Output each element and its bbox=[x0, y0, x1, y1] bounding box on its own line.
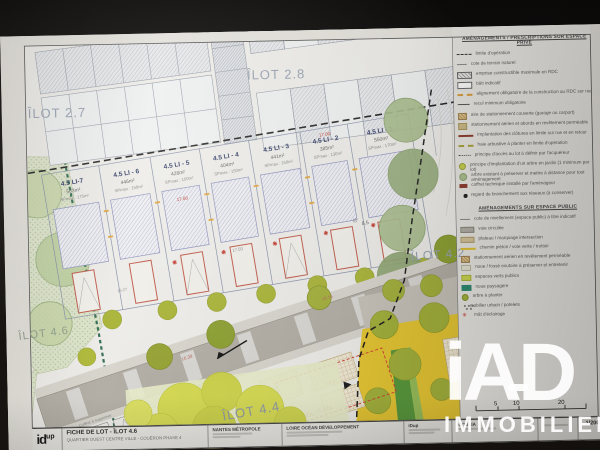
dimension-label: 8.5 bbox=[361, 220, 369, 227]
title-block-title-cell: FICHE DE LOT - ÎLOT 4.6 QUARTIER OUEST C… bbox=[62, 425, 208, 450]
legend-item-icon bbox=[458, 123, 467, 130]
legend-item-label: cote de terrain naturel bbox=[471, 60, 516, 66]
legend-item-icon bbox=[460, 236, 474, 242]
iad-logo: iAD bbox=[444, 338, 600, 408]
legend-item: regard de branchement aux réseaux (à con… bbox=[459, 190, 595, 203]
title-block-logo-cell: idup bbox=[32, 428, 62, 450]
legend-private-title: AMÉNAGEMENTS / PRESCRIPTIONS SUR ESPACE … bbox=[456, 34, 592, 47]
idup-logo: idup bbox=[36, 432, 54, 447]
legend-item-label: regard de branchement aux réseaux (à con… bbox=[471, 190, 573, 197]
legend-item-icon bbox=[464, 194, 468, 198]
legend-item-icon bbox=[457, 94, 472, 96]
watermark-tagline: IMMOBILIER bbox=[444, 412, 600, 438]
legend-item-icon bbox=[457, 64, 467, 65]
legend-item-icon bbox=[459, 155, 471, 156]
legend-item-label: cote de nivellement (espace public) à ti… bbox=[474, 214, 576, 221]
legend-public-title: AMÉNAGEMENTS SUR ESPACE PUBLIC bbox=[460, 205, 596, 213]
legend-item-icon bbox=[460, 219, 470, 220]
legend-item-icon bbox=[457, 82, 472, 89]
legend-item-icon bbox=[459, 163, 466, 170]
legend-item-label: stationnement aérien et abords en revête… bbox=[471, 119, 588, 127]
legend-item-icon bbox=[457, 72, 472, 79]
legend-item-label: noue paysagère bbox=[475, 283, 508, 289]
legend-item-label: bâti indicatif bbox=[476, 80, 500, 86]
legend-item-label: plateau / marquage intersection bbox=[478, 234, 542, 241]
legend-item-icon bbox=[461, 265, 471, 271]
legend-item-label: arbre à planter bbox=[473, 292, 503, 298]
legend-panel: AMÉNAGEMENTS / PRESCRIPTIONS SUR ESPACE … bbox=[456, 34, 598, 322]
legend-item-label: stationnement aérien en revêtement permé… bbox=[474, 253, 571, 260]
legend-item-icon bbox=[464, 305, 466, 307]
legend-item-label: coffret technique installé par l'aménage… bbox=[471, 180, 555, 187]
legend-item-icon bbox=[462, 294, 469, 301]
author-name: iDup bbox=[408, 422, 448, 428]
legend-item-label: limite d'opération bbox=[476, 50, 511, 56]
legend-item-label: aire de stationnement couverte (garage o… bbox=[471, 109, 575, 116]
legend-item-icon bbox=[462, 313, 470, 320]
legend-item-label: haie arbustive à planter en limite d'opé… bbox=[477, 140, 567, 147]
legend-item-label: voie circulée bbox=[478, 225, 504, 231]
legend-item-icon bbox=[458, 135, 473, 137]
legend-item-label: espaces verts publics bbox=[475, 273, 519, 279]
client-name: NANTES MÉTROPOLE bbox=[212, 426, 278, 432]
legend-item-icon bbox=[461, 284, 471, 290]
ilot-2-7-label: ÎLOT 2.7 bbox=[28, 105, 87, 121]
legend-item-icon bbox=[460, 227, 474, 233]
watermark-dash bbox=[508, 384, 528, 391]
legend-item-label: chemin piéton / voie verte / trottoir bbox=[480, 243, 549, 250]
legend-item-label: recul minimum obligatoire bbox=[474, 100, 526, 106]
legend-item-label: implantation des clôtures en limite sur … bbox=[477, 129, 587, 137]
legend-item-icon bbox=[461, 256, 470, 263]
title-block-client-cell: NANTES MÉTROPOLE bbox=[208, 424, 282, 448]
legend-item-label: mobilier urbain / potelets bbox=[470, 302, 520, 308]
legend-item-icon bbox=[459, 184, 467, 188]
legend-item-icon bbox=[458, 112, 467, 119]
legend-item-label: mât d'éclairage bbox=[474, 311, 505, 317]
legend-item-icon bbox=[461, 247, 476, 249]
title-block-developer-cell: LOIRE OCÉAN DÉVELOPPEMENT bbox=[282, 421, 404, 446]
watermark: iAD IMMOBILIER bbox=[444, 338, 600, 438]
legend-item-label: principe d'accès au lot à définir par l'… bbox=[475, 150, 570, 157]
legend-item-icon bbox=[459, 145, 474, 147]
photo-of-site-plan: 4.5 LI-7 583m² SPmax : 175m² 4.5 LI - 6 … bbox=[0, 0, 600, 450]
legend-item-icon bbox=[461, 275, 471, 281]
legend-item-label: emprise constructible maximale en RDC bbox=[476, 69, 558, 76]
legend-item-label: alignement obligatoire de la constructio… bbox=[476, 89, 592, 97]
legend-item-icon bbox=[459, 173, 467, 181]
legend-item-label: noue / fossé exutoire à préserver et ent… bbox=[475, 262, 568, 269]
legend-item-icon bbox=[457, 54, 472, 55]
developer-name: LOIRE OCÉAN DÉVELOPPEMENT bbox=[286, 423, 400, 430]
ilot-2-8-label: ÎLOT 2.8 bbox=[247, 66, 306, 82]
legend-item-icon bbox=[458, 104, 470, 105]
